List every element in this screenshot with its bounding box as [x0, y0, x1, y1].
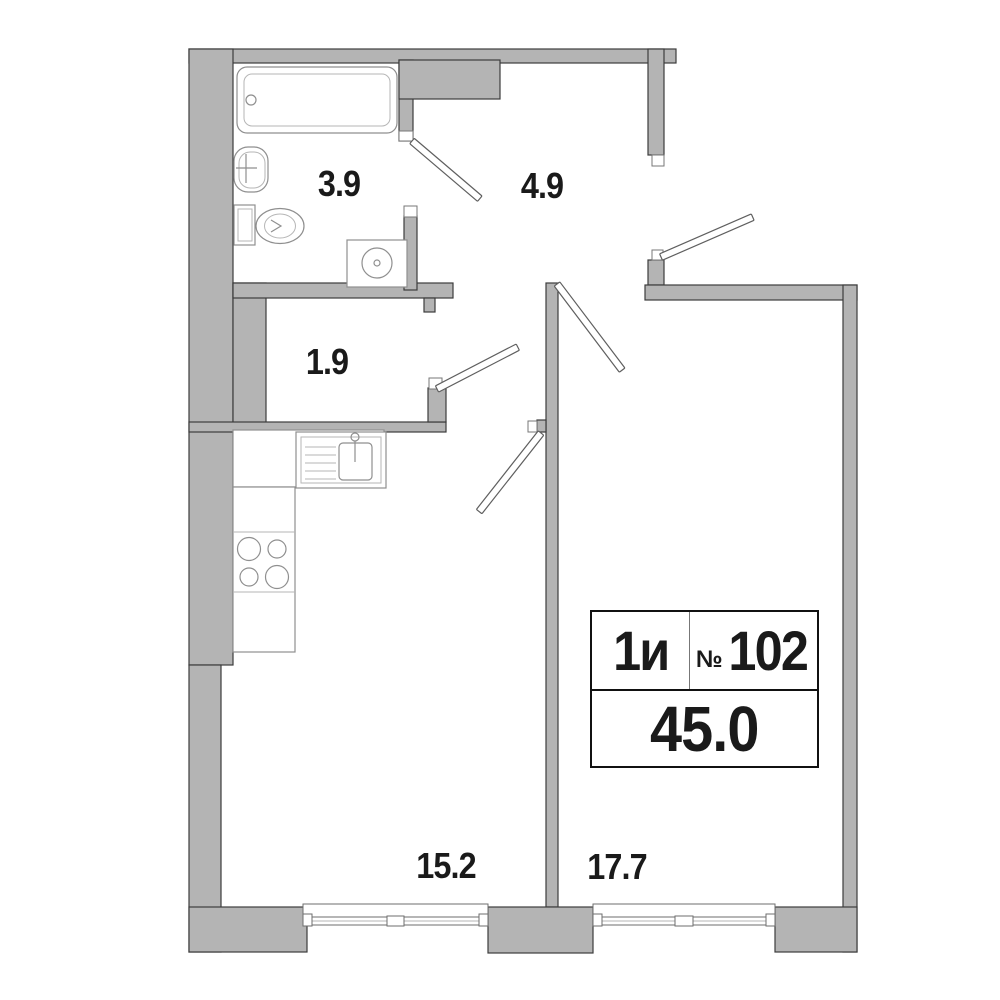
- room-area-label-kitchen-living: 15.2: [413, 845, 479, 887]
- kitchen-sink: [296, 432, 386, 488]
- jamb-bathroom-bottom: [404, 206, 417, 217]
- unit-info-card: 1и № 102 45.0: [590, 610, 819, 768]
- wall-segment-storage-door-stub: [428, 388, 446, 422]
- window-end-cap: [766, 914, 775, 926]
- window-frame: [303, 904, 488, 917]
- wash-basin: [234, 147, 268, 192]
- wall-segment-bedroom-top: [645, 285, 857, 300]
- washing-machine: [347, 240, 407, 287]
- numero-sign: №: [696, 646, 723, 674]
- wall-segment-bottom-middle: [488, 907, 593, 953]
- room-area-label-bedroom: 17.7: [584, 846, 650, 888]
- unit-card-top-row: 1и № 102: [592, 612, 817, 691]
- room-area-value: 1.9: [306, 341, 348, 383]
- unit-number-cell: № 102: [690, 612, 817, 689]
- room-area-label-hallway: 4.9: [518, 165, 565, 207]
- wall-segment-bottom-right: [775, 907, 857, 952]
- window-frame: [593, 904, 775, 917]
- room-area-value: 3.9: [318, 163, 360, 205]
- toilet: [234, 205, 304, 245]
- jamb-entry-top: [652, 155, 664, 166]
- unit-number: 102: [728, 618, 807, 683]
- window-end-cap: [479, 914, 488, 926]
- wall-segment-top-step: [399, 60, 500, 99]
- window-center-mullion: [387, 916, 404, 926]
- window-center-mullion: [675, 916, 693, 926]
- window-bedroom: [593, 904, 775, 926]
- floor-plan-drawing: [0, 0, 1000, 1000]
- unit-total-area: 45.0: [650, 692, 759, 766]
- window-end-cap: [303, 914, 312, 926]
- wall-segment-middle: [546, 283, 558, 907]
- door-leaf-bathroom: [410, 138, 482, 201]
- door-leaf-kitchen: [476, 431, 543, 514]
- room-area-value: 17.7: [587, 846, 646, 888]
- door-leaf-entrance: [660, 214, 754, 260]
- room-area-label-storage: 1.9: [303, 341, 350, 383]
- jamb-kitchen: [528, 421, 537, 432]
- floor-plan: 3.9 4.9 1.9 15.2 17.7 1и № 102 45.0: [0, 0, 1000, 1000]
- unit-type-label: 1и: [613, 618, 668, 683]
- jamb-bathroom-top: [399, 131, 413, 141]
- door-leaf-bedroom: [554, 282, 625, 372]
- wall-segment-entry-stub: [648, 260, 664, 285]
- wall-segment-bathroom-bottom-stub: [424, 298, 435, 312]
- room-area-value: 4.9: [521, 165, 563, 207]
- wall-segment-bathroom-bottom: [233, 283, 453, 298]
- wall-segment-kitchen-door-bump: [537, 420, 546, 432]
- unit-area-cell: 45.0: [592, 691, 817, 766]
- room-area-label-bathroom: 3.9: [315, 163, 362, 205]
- door-leaf-storage: [435, 344, 519, 392]
- wall-segment-entry-upper: [648, 49, 664, 155]
- wall-segment-left-upper: [189, 49, 233, 665]
- window-end-cap: [593, 914, 602, 926]
- wall-segment-storage-left: [233, 283, 266, 432]
- doors: [410, 138, 754, 513]
- unit-type-cell: 1и: [592, 612, 690, 689]
- wall-segment-bottom-left: [189, 907, 307, 952]
- bathtub: [237, 67, 397, 133]
- window-living-room: [303, 904, 488, 926]
- wall-segment-right: [843, 285, 857, 952]
- room-area-value: 15.2: [416, 845, 475, 887]
